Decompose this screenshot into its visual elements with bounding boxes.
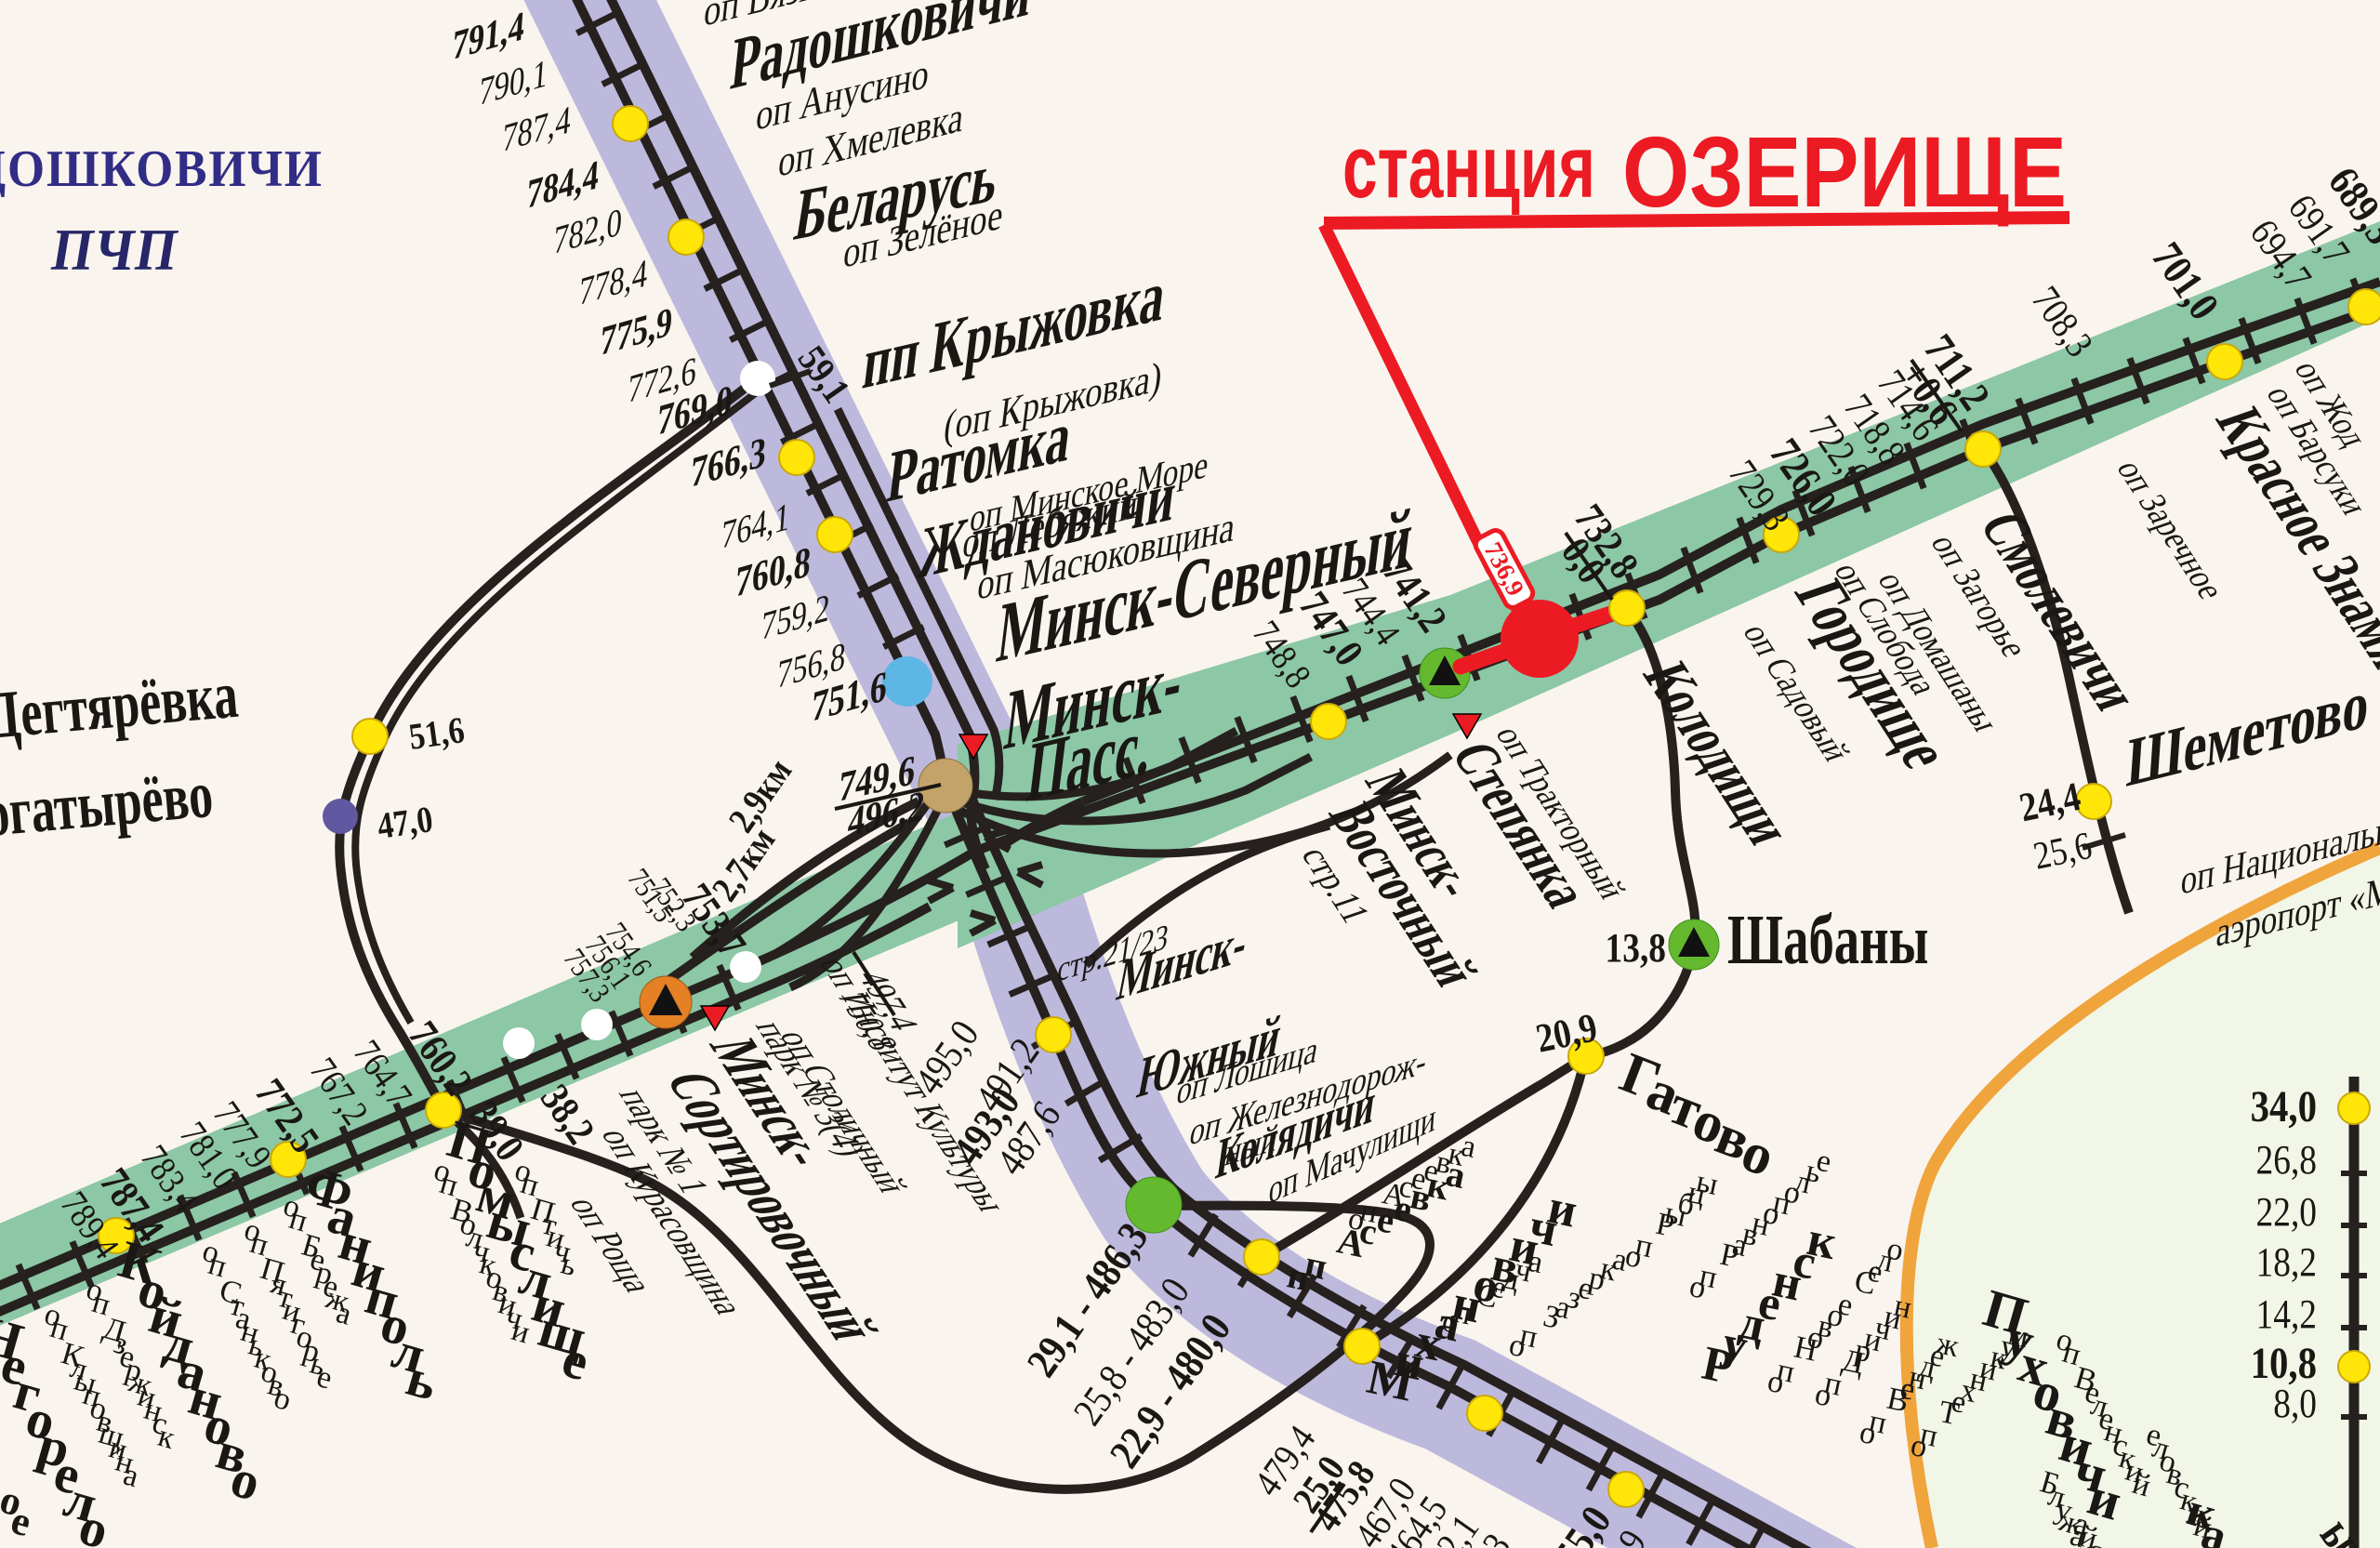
- svg-text:Шабаны: Шабаны: [1727, 901, 1928, 979]
- svg-text:ОЗЕРИЩЕ: ОЗЕРИЩЕ: [1622, 115, 2067, 228]
- svg-text:47,0: 47,0: [375, 800, 435, 848]
- svg-text:ПЧП: ПЧП: [50, 218, 179, 284]
- svg-text:14,2: 14,2: [2256, 1291, 2317, 1336]
- svg-text:8,0: 8,0: [2273, 1381, 2317, 1425]
- svg-text:22,0: 22,0: [2256, 1189, 2317, 1234]
- svg-text:51,6: 51,6: [406, 710, 467, 759]
- svg-text:18,2: 18,2: [2256, 1239, 2317, 1284]
- svg-text:станция: станция: [1342, 117, 1595, 217]
- svg-text:РАДОШКОВИЧИ: РАДОШКОВИЧИ: [0, 139, 324, 197]
- svg-text:34,0: 34,0: [2251, 1081, 2317, 1131]
- svg-text:26,8: 26,8: [2256, 1137, 2317, 1182]
- svg-text:13,8: 13,8: [1606, 925, 1666, 970]
